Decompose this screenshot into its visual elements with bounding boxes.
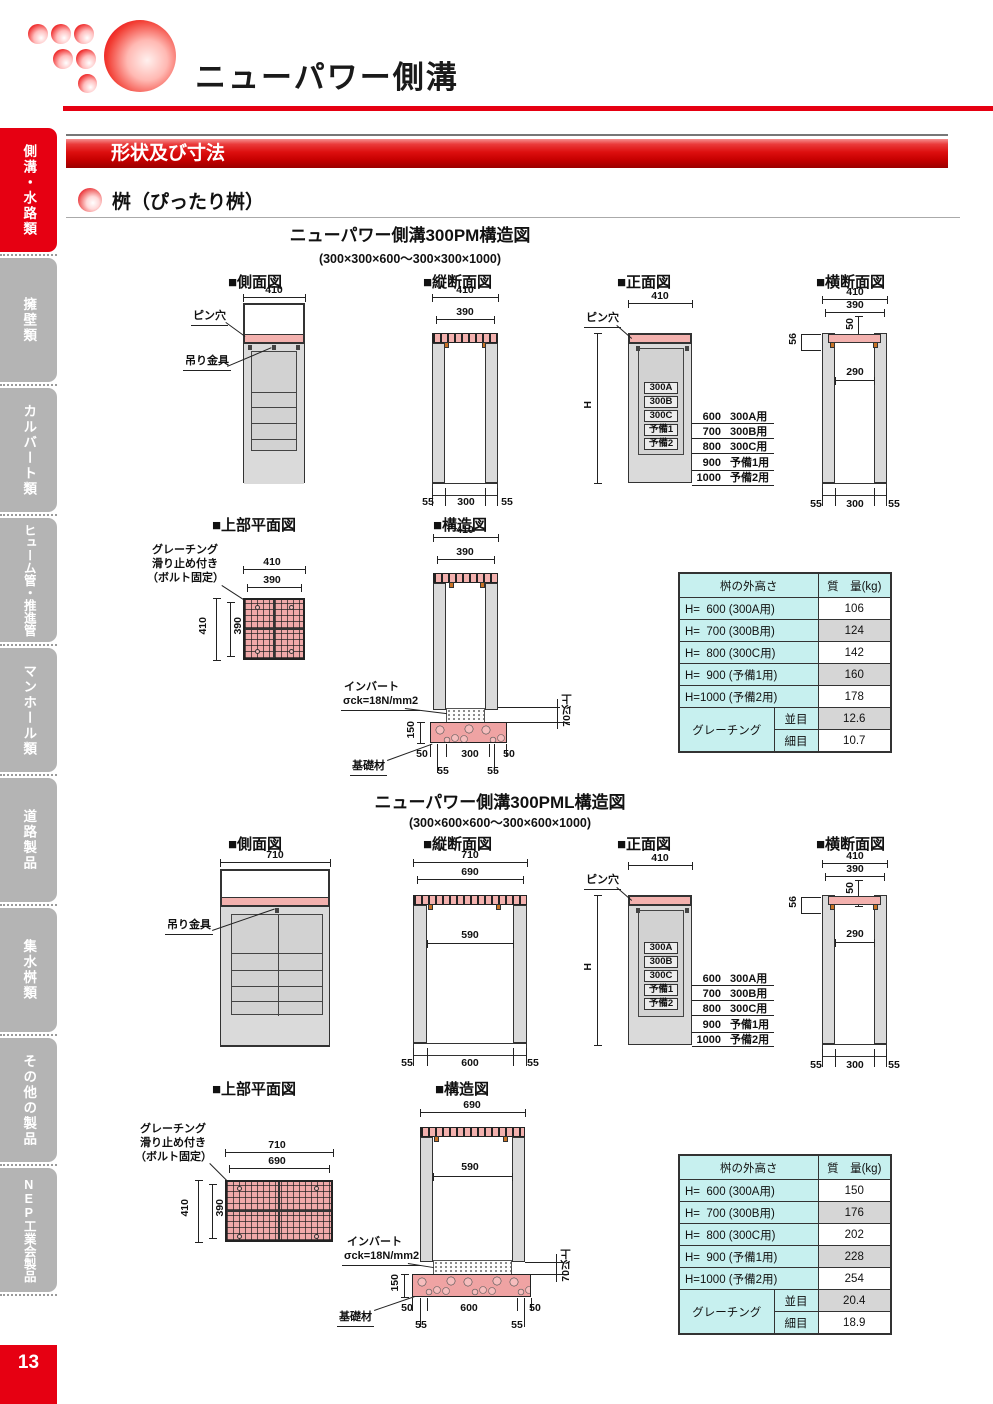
dim-label: 410: [180, 1199, 191, 1217]
dim-label: 590: [461, 1162, 479, 1173]
sidebar-item-nep[interactable]: NEP工業会製品: [0, 1168, 57, 1292]
logo-circle: [28, 24, 48, 44]
table-row-value: 254: [818, 1268, 891, 1290]
subsection-bullet-icon: [78, 188, 102, 212]
dim-label: 55: [527, 1058, 539, 1069]
sidebar-item-manhole[interactable]: マンホール類: [0, 648, 57, 772]
dim-label: 55: [422, 497, 434, 508]
dim-label: 690: [268, 1156, 286, 1167]
sidebar-separator: [0, 1164, 57, 1166]
dim-label: 410: [651, 853, 669, 864]
anchor-bolt: [503, 1136, 508, 1142]
dim-label: 410: [846, 851, 864, 862]
table-row-value: 10.7: [818, 730, 891, 753]
dim-label: 50: [529, 1303, 541, 1314]
dim-label: 410: [265, 285, 283, 296]
concrete-wall: [485, 583, 498, 710]
dim-label: 600: [461, 1058, 479, 1069]
table-row-value: 202: [818, 1224, 891, 1246]
subsection-title: 桝（ぴったり桝）: [112, 192, 264, 215]
catalog-page: ニューパワー側溝 側溝・水路類 擁壁類 カルバート類 ヒューム管・推進管 マンホ…: [0, 0, 993, 1404]
anchor-bolt: [434, 1136, 439, 1142]
dim-label: 55: [401, 1058, 413, 1069]
sidebar-separator: [0, 1294, 57, 1296]
dim-label: 50: [401, 1303, 413, 1314]
dim-label: 55: [888, 1060, 900, 1071]
table-row-value: 12.6: [818, 708, 891, 730]
dim-label: 390: [846, 864, 864, 875]
concrete-wall: [485, 343, 498, 483]
concrete-wall: [513, 905, 527, 1043]
sidebar-item-label: マンホール類: [22, 664, 36, 757]
dim-label: 390: [263, 575, 281, 586]
dim-label: 290: [846, 367, 864, 378]
dim-label: 70以上: [561, 1249, 572, 1282]
table-row-value: 176: [818, 1202, 891, 1224]
grating-note: グレーチング: [152, 544, 218, 557]
type-label: 300C: [644, 970, 678, 982]
type-label: 300A: [644, 382, 678, 394]
logo-circle: [74, 24, 94, 44]
sidebar-item-label: 集水桝類: [22, 939, 36, 1001]
banner-top-rule: [66, 134, 948, 136]
s2-front-title: ■正面図: [617, 833, 671, 854]
table-row-label: H= 800 (300C用): [679, 1224, 818, 1246]
grating-hatch-band: [432, 333, 498, 343]
bolt-icon: [255, 605, 260, 610]
dim-label: 50: [845, 882, 856, 894]
section-banner: 形状及び寸法: [66, 139, 948, 168]
sidebar-separator: [0, 384, 57, 386]
sidebar-item-shusui[interactable]: 集水桝類: [0, 908, 57, 1032]
table-row-value: 142: [818, 642, 891, 664]
s1-front-title: ■正面図: [617, 271, 671, 292]
dim-label: 55: [810, 1060, 822, 1071]
s1-title: ニューパワー側溝300PM構造図: [250, 221, 570, 246]
sidebar-item-label: NEP工業会製品: [22, 1178, 35, 1283]
sidebar-item-label: 擁壁類: [22, 297, 36, 344]
dim-label: 410: [198, 617, 209, 635]
page-number-badge: 13: [0, 1345, 57, 1404]
dim-label: 50: [416, 749, 428, 760]
table-row-value: 150: [818, 1180, 891, 1202]
concrete-wall: [822, 333, 835, 483]
sidebar-item-doro[interactable]: 道路製品: [0, 778, 57, 902]
foundation: [412, 1274, 531, 1297]
dim-label: 55: [810, 499, 822, 510]
invert-fill: [446, 708, 485, 722]
sidebar-item-sonota[interactable]: その他の製品: [0, 1038, 57, 1162]
s2-plan-title: ■上部平面図: [212, 1078, 296, 1099]
s2-title: ニューパワー側溝300PML構造図: [340, 788, 660, 813]
base-material-label: 基礎材: [350, 760, 387, 776]
type-label: 予備2: [644, 438, 678, 450]
dim-label: 600: [460, 1303, 478, 1314]
dim-label: 55: [888, 499, 900, 510]
dim-label: 710: [461, 850, 479, 861]
table-row-label: H=1000 (予備2用): [679, 1268, 818, 1290]
dim-label-h: H: [583, 401, 594, 409]
side-body: [243, 303, 305, 483]
front-body: 300A 300B 300C 予備1 予備2: [628, 895, 692, 1045]
height-row: 600300A用: [694, 412, 767, 423]
dim-label: 70以上: [562, 694, 573, 727]
dim-label: 300: [846, 499, 864, 510]
sidebar-item-culvert[interactable]: カルバート類: [0, 388, 57, 512]
dim-label: 55: [487, 766, 499, 777]
weight-table-2: 桝の外高さ質 量(kg) H= 600 (300A用)150 H= 700 (3…: [678, 1154, 892, 1335]
logo-circle: [76, 49, 96, 69]
page-title: ニューパワー側溝: [195, 52, 459, 97]
mesh-type-label: 並目: [774, 1290, 818, 1312]
table-row-value: 178: [818, 686, 891, 708]
sidebar-item-humekan[interactable]: ヒューム管・推進管: [0, 518, 57, 642]
table-row-value: 124: [818, 620, 891, 642]
dim-label: 390: [215, 1199, 226, 1217]
invert-label: インバート: [344, 681, 399, 694]
dim-label: 300: [457, 497, 475, 508]
dim-label: 590: [461, 930, 479, 941]
sidebar-separator: [0, 1034, 57, 1036]
dim-label: 690: [463, 1100, 481, 1111]
sidebar-item-label: その他の製品: [22, 1054, 36, 1147]
table-row-label: H= 900 (予備1用): [679, 1246, 818, 1268]
grating-note: 滑り止め付き: [140, 1137, 206, 1150]
table-row-value: 18.9: [818, 1312, 891, 1335]
dim-label: 55: [437, 766, 449, 777]
concrete-wall: [822, 895, 835, 1044]
dim-label: 300: [846, 1060, 864, 1071]
grating-strip: [828, 896, 881, 905]
height-row: 700300B用: [694, 989, 767, 1000]
height-row: 700300B用: [694, 427, 767, 438]
table-row-label: H= 600 (300A用): [679, 1180, 818, 1202]
s2-struct-title: ■構造図: [435, 1078, 489, 1099]
concrete-wall: [420, 1137, 433, 1262]
logo-circle: [78, 74, 97, 93]
sidebar-item-label: 道路製品: [22, 809, 36, 871]
grating-note: （ボルト固定）: [135, 1151, 212, 1164]
type-label: 300A: [644, 942, 678, 954]
s1-subtitle: (300×300×600～300×300×1000): [250, 248, 570, 267]
concrete-wall: [874, 333, 887, 483]
concrete-wall: [874, 895, 887, 1044]
dim-label: 410: [456, 285, 474, 296]
sidebar-item-yoheki[interactable]: 擁壁類: [0, 258, 57, 382]
weight-table-1: 桝の外高さ質 量(kg) H= 600 (300A用)106 H= 700 (3…: [678, 572, 892, 753]
concrete-wall: [432, 343, 445, 483]
side-body: [220, 869, 330, 1047]
dim-label: 710: [266, 850, 284, 861]
front-body: 300A 300B 300C 予備1 予備2: [628, 333, 692, 483]
dim-label: 56: [788, 896, 799, 908]
type-label: 300C: [644, 410, 678, 422]
type-label: 予備1: [644, 984, 678, 996]
dim-label: 410: [456, 525, 474, 536]
dim-label-h: H: [583, 963, 594, 971]
invert-fill: [433, 1260, 512, 1274]
table-header: 桝の外高さ: [679, 1155, 818, 1180]
hanger-label: 吊り金具: [183, 355, 231, 371]
dim-label: 55: [415, 1320, 427, 1331]
dim-label: 410: [651, 291, 669, 302]
s1-plan-title: ■上部平面図: [212, 514, 296, 535]
grating-strip: [828, 334, 881, 343]
table-row-value: 228: [818, 1246, 891, 1268]
s2-long-title: ■縦断面図: [423, 833, 492, 854]
dim-label: 150: [390, 1274, 401, 1292]
grating-note: グレーチング: [140, 1123, 206, 1136]
anchor-bolt: [496, 904, 501, 910]
dim-label: 56: [788, 333, 799, 345]
bolt-icon: [237, 1234, 242, 1239]
table-row-label: H= 700 (300B用): [679, 620, 818, 642]
grating-row-label: グレーチング: [679, 708, 774, 753]
bolt-icon: [237, 1186, 242, 1191]
dim-label: 710: [268, 1140, 286, 1151]
bolt-icon: [289, 605, 294, 610]
type-label: 300B: [644, 956, 678, 968]
table-row-label: H= 800 (300C用): [679, 642, 818, 664]
dim-label: 410: [846, 287, 864, 298]
foundation: [430, 722, 507, 743]
sidebar-separator: [0, 904, 57, 906]
type-label: 予備1: [644, 424, 678, 436]
logo-big-circle: [104, 20, 176, 92]
s2-subtitle: (300×600×600～300×600×1000): [340, 812, 660, 831]
sidebar-item-label: カルバート類: [22, 404, 36, 497]
dim-label: 290: [846, 929, 864, 940]
height-row: 1000予備2用: [694, 1035, 769, 1046]
height-row: 900予備1用: [694, 458, 769, 469]
dim-label: 690: [461, 867, 479, 878]
height-row: 600300A用: [694, 974, 767, 985]
dim-label: 390: [233, 617, 244, 635]
sidebar-item-sokko-suiro[interactable]: 側溝・水路類: [0, 128, 57, 252]
bolt-icon: [314, 1186, 319, 1191]
anchor-bolt: [449, 582, 454, 588]
sidebar-item-label: 側溝・水路類: [22, 144, 36, 237]
height-row: 1000予備2用: [694, 473, 769, 484]
grating-hatch-band: [433, 573, 498, 583]
concrete-wall: [413, 905, 427, 1043]
type-label: 予備2: [644, 998, 678, 1010]
invert-label: インバート: [347, 1236, 402, 1249]
dim-label: 50: [503, 749, 515, 760]
bolt-icon: [314, 1234, 319, 1239]
anchor-bolt: [428, 904, 433, 910]
height-row: 900予備1用: [694, 1020, 769, 1031]
table-row-value: 160: [818, 664, 891, 686]
table-row-label: H= 700 (300B用): [679, 1202, 818, 1224]
height-row: 800300C用: [694, 442, 767, 453]
sidebar-separator: [0, 644, 57, 646]
grating-row-label: グレーチング: [679, 1290, 774, 1335]
bolt-icon: [255, 649, 260, 654]
grating-panel: [243, 598, 305, 660]
pin-hole-label: ピン穴: [191, 310, 228, 326]
table-header: 質 量(kg): [818, 573, 891, 598]
dim-label: 390: [456, 547, 474, 558]
dim-label: 150: [406, 721, 417, 739]
dim-label: 55: [511, 1320, 523, 1331]
header-rule: [63, 106, 993, 111]
height-row: 800300C用: [694, 1004, 767, 1015]
table-header: 質 量(kg): [818, 1155, 891, 1180]
logo-circle: [51, 24, 71, 44]
dim-label: 55: [501, 497, 513, 508]
logo-circle: [53, 49, 73, 69]
bolt-icon: [289, 649, 294, 654]
concrete-wall: [512, 1137, 525, 1262]
sidebar-item-label: ヒューム管・推進管: [22, 524, 35, 637]
mesh-type-label: 並目: [774, 708, 818, 730]
dim-label: 50: [845, 318, 856, 330]
dim-label: 300: [461, 749, 479, 760]
table-row-value: 20.4: [818, 1290, 891, 1312]
table-row-label: H= 900 (予備1用): [679, 664, 818, 686]
dim-label: 390: [846, 300, 864, 311]
sidebar-separator: [0, 774, 57, 776]
table-header: 桝の外高さ: [679, 573, 818, 598]
mesh-type-label: 細目: [774, 1312, 818, 1335]
dim-label: 390: [456, 307, 474, 318]
grating-note: （ボルト固定）: [147, 572, 224, 585]
base-material-label: 基礎材: [337, 1311, 374, 1327]
table-row-label: H= 600 (300A用): [679, 598, 818, 620]
grating-note: 滑り止め付き: [152, 558, 218, 571]
concrete-wall: [433, 583, 446, 710]
dim-label: 410: [263, 557, 281, 568]
type-label: 300B: [644, 396, 678, 408]
sidebar-separator: [0, 254, 57, 256]
mesh-type-label: 細目: [774, 730, 818, 753]
sidebar-separator: [0, 514, 57, 516]
hanger-label: 吊り金具: [165, 919, 213, 935]
subsection-rule: [66, 217, 960, 218]
table-row-value: 106: [818, 598, 891, 620]
table-row-label: H=1000 (予備2用): [679, 686, 818, 708]
